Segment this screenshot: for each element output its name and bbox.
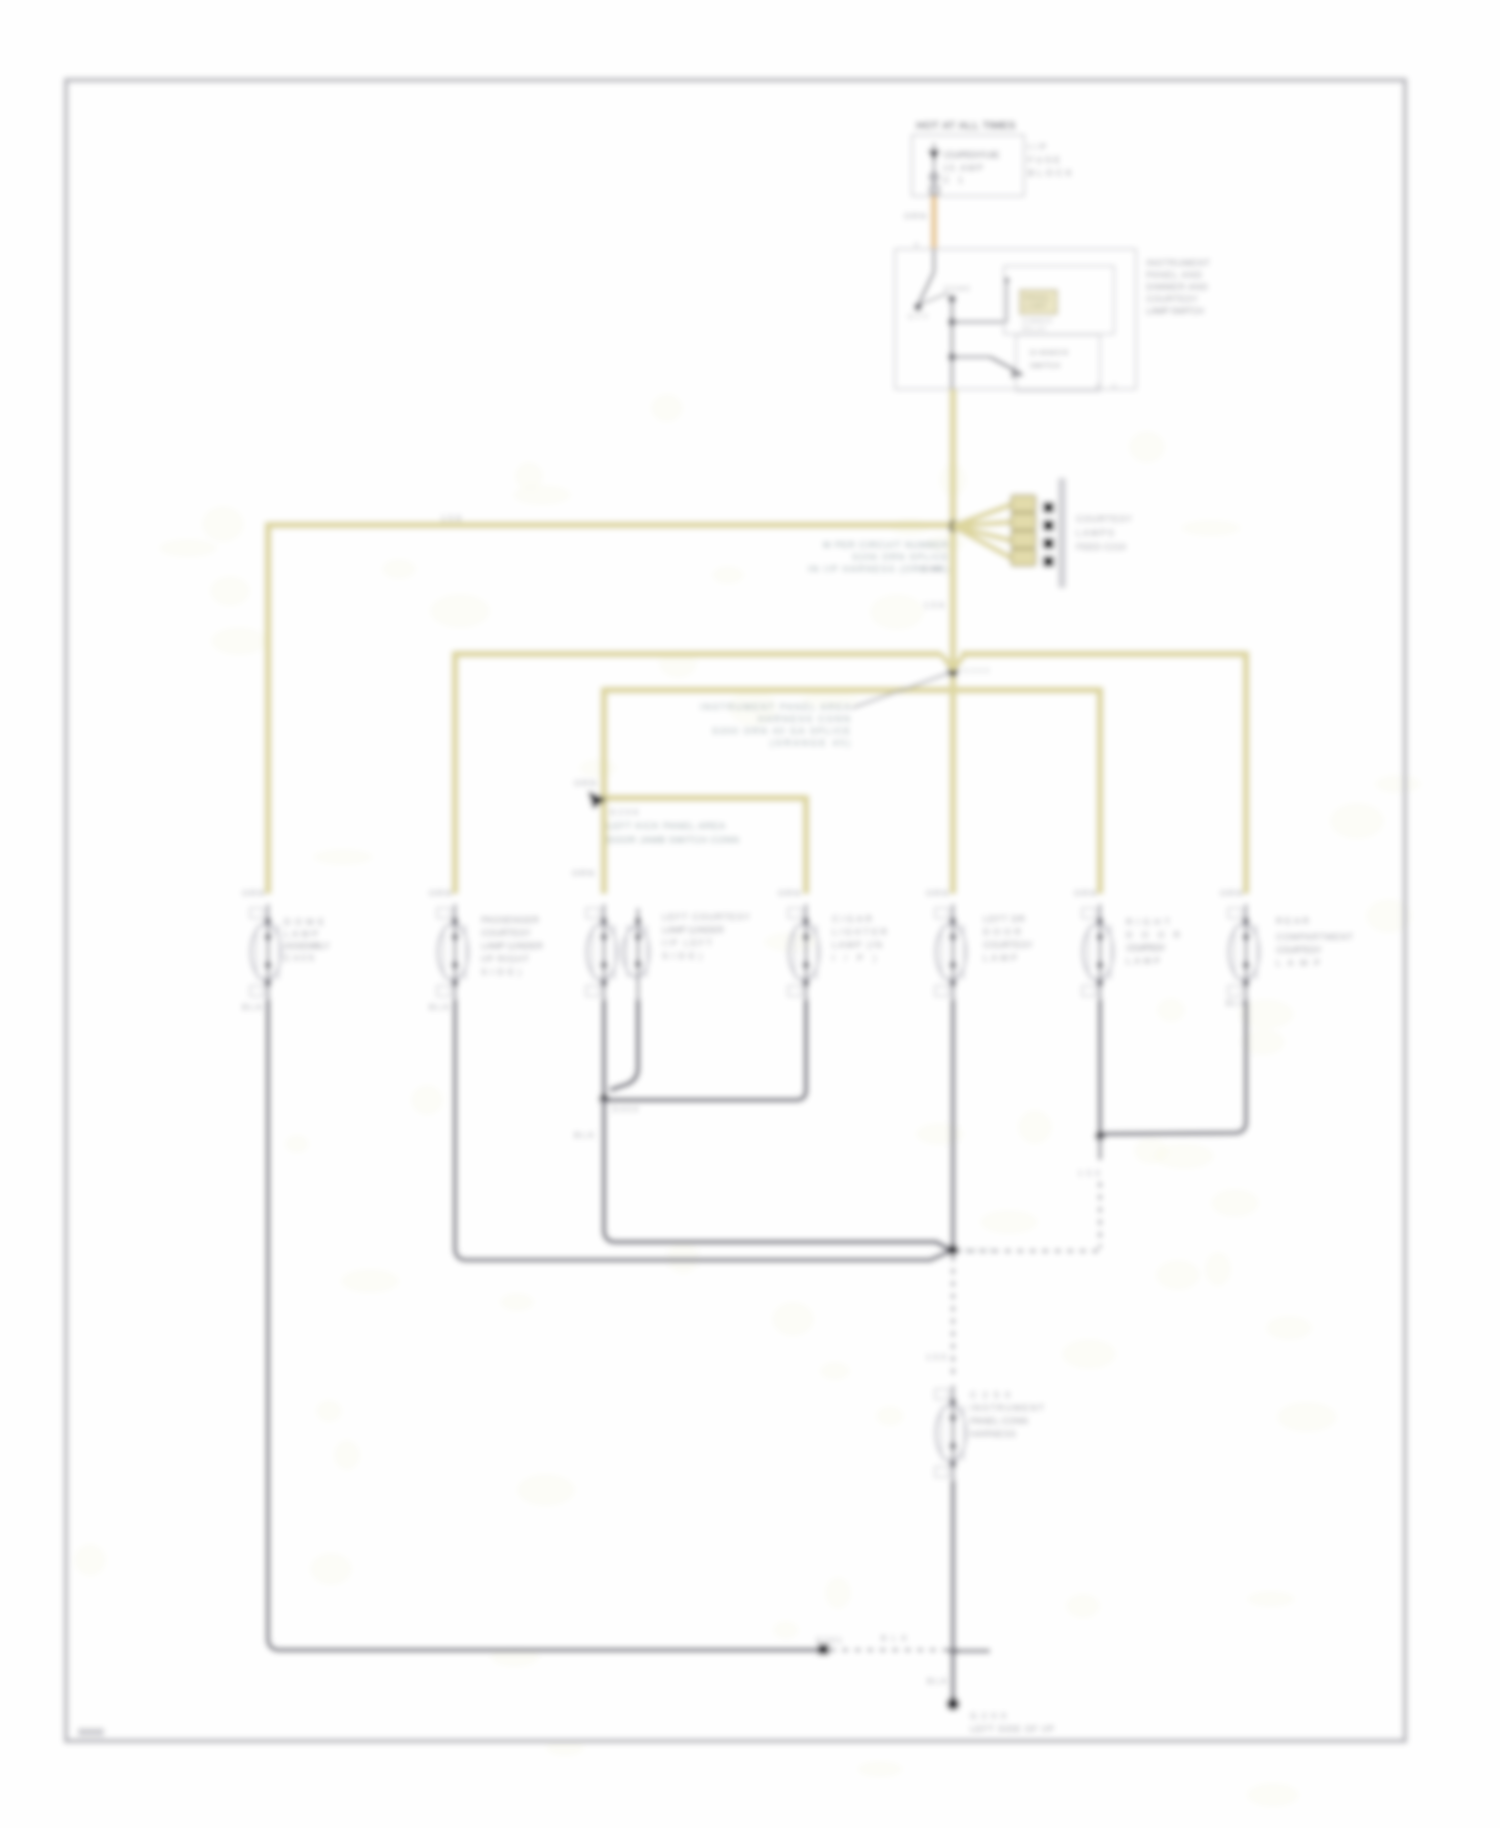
- svg-text:156: 156: [924, 600, 944, 610]
- svg-text:COURTESY: COURTESY: [1146, 294, 1198, 304]
- svg-text:LEFT COURTESY: LEFT COURTESY: [662, 912, 750, 922]
- svg-text:COURTESY: COURTESY: [481, 928, 531, 938]
- svg-text:LEFT DR: LEFT DR: [983, 914, 1026, 924]
- svg-text:HARNESS: HARNESS: [970, 1429, 1016, 1439]
- svg-text:DOOR JAMB SWITCH CONN: DOOR JAMB SWITCH CONN: [607, 835, 739, 845]
- svg-text:ORN: ORN: [926, 888, 948, 898]
- svg-text:LAMP: LAMP: [1024, 304, 1046, 310]
- svg-text:COURTESY FUSE: COURTESY FUSE: [943, 150, 1000, 160]
- svg-text:ORN: ORN: [778, 888, 800, 898]
- svg-text:PASSENGER: PASSENGER: [481, 915, 540, 925]
- svg-text:150: 150: [926, 1352, 946, 1362]
- svg-text:15 AMP: 15 AMP: [943, 163, 983, 173]
- svg-text:COURTESY: COURTESY: [983, 940, 1033, 950]
- svg-text:ORN: ORN: [242, 888, 264, 898]
- svg-text:ORN: ORN: [904, 211, 926, 221]
- svg-text:CIGAR: CIGAR: [832, 914, 873, 924]
- svg-text:BLK: BLK: [429, 1002, 449, 1012]
- svg-text:INSTRUMENT PANEL AREA: INSTRUMENT PANEL AREA: [700, 702, 850, 712]
- svg-text:COMPARTMENT: COMPARTMENT: [1276, 932, 1354, 942]
- svg-text:DIMMER: DIMMER: [1022, 319, 1053, 325]
- svg-text:LAMP SWITCH: LAMP SWITCH: [1146, 306, 1204, 316]
- svg-text:S300 ORN 40 GA SPLICE: S300 ORN 40 GA SPLICE: [712, 726, 850, 736]
- svg-text:ORN: ORN: [1220, 888, 1242, 898]
- svg-text:B: B: [1096, 383, 1100, 390]
- svg-text:LAMP (UNDER: LAMP (UNDER: [481, 941, 544, 951]
- svg-text:PANEL AND: PANEL AND: [1146, 270, 1203, 280]
- svg-text:BLK: BLK: [927, 1676, 947, 1686]
- svg-text:LAMP (UNDER: LAMP (UNDER: [662, 925, 725, 935]
- svg-text:COURTESY: COURTESY: [1126, 943, 1166, 953]
- svg-text:PANEL CONN: PANEL CONN: [970, 1416, 1028, 1426]
- svg-text:RELAY: RELAY: [1022, 327, 1046, 333]
- svg-text:ORN: ORN: [574, 778, 596, 788]
- svg-text:LEFT KICK PANEL AREA: LEFT KICK PANEL AREA: [607, 821, 725, 831]
- svg-text:BLK: BLK: [1226, 998, 1246, 1008]
- svg-text:OFF: OFF: [908, 314, 928, 321]
- svg-text:INSTRUMENT: INSTRUMENT: [1146, 258, 1211, 268]
- svg-text:COURTESY: COURTESY: [1076, 514, 1132, 524]
- svg-text:ORN: ORN: [572, 868, 594, 878]
- svg-text:DIMMER AND: DIMMER AND: [1146, 282, 1209, 292]
- svg-text:M PER CIRCUIT NUMBER: M PER CIRCUIT NUMBER: [823, 540, 949, 550]
- svg-text:DOME: DOME: [944, 286, 970, 293]
- svg-text:HOT AT ALL TIMES: HOT AT ALL TIMES: [916, 120, 1016, 132]
- svg-text:BLK: BLK: [574, 1130, 594, 1140]
- svg-text:I/P RIGHT: I/P RIGHT: [481, 954, 530, 964]
- svg-text:COURTESY: COURTESY: [1276, 945, 1322, 955]
- svg-text:ASSEMBLY: ASSEMBLY: [284, 941, 330, 951]
- svg-text:S206 ORN SPLICE: S206 ORN SPLICE: [852, 552, 948, 562]
- svg-text:156: 156: [441, 513, 461, 523]
- svg-text:BLK: BLK: [242, 1002, 262, 1012]
- svg-text:PRNDL: PRNDL: [1024, 296, 1051, 302]
- svg-text:ORN: ORN: [1074, 888, 1096, 898]
- svg-text:150: 150: [1078, 1169, 1101, 1178]
- svg-text:BLK: BLK: [881, 1634, 908, 1643]
- svg-text:LEFT SIDE OF I/P: LEFT SIDE OF I/P: [970, 1724, 1054, 1734]
- svg-text:FEED C210: FEED C210: [1076, 542, 1126, 552]
- svg-text:ORN: ORN: [429, 888, 451, 898]
- svg-text:C: C: [1112, 383, 1117, 390]
- svg-text:SWITCH: SWITCH: [1030, 363, 1060, 370]
- svg-text:HARNESS CONN: HARNESS CONN: [758, 714, 850, 724]
- svg-text:A: A: [914, 242, 919, 249]
